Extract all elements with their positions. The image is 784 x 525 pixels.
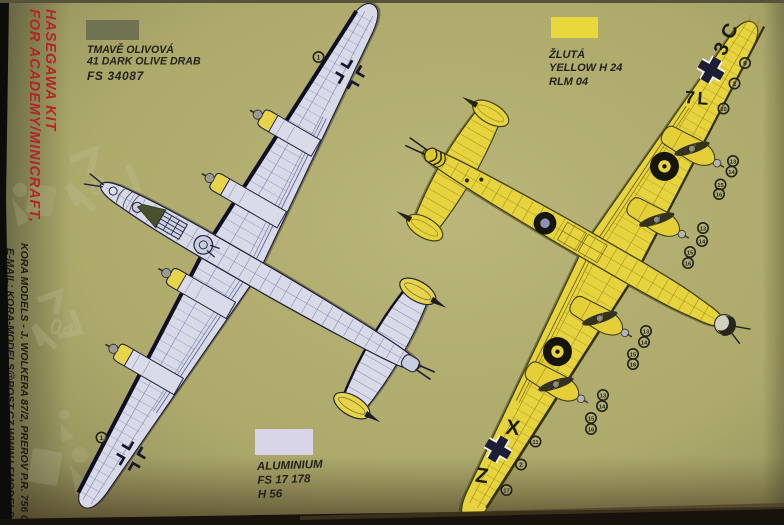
svg-text:41 DARK OLIVE DRAB: 41 DARK OLIVE DRAB [86,56,201,68]
svg-text:16: 16 [588,427,595,433]
svg-text:14: 14 [728,170,735,176]
svg-text:10: 10 [720,107,726,113]
svg-text:14: 14 [599,404,606,410]
svg-text:TMAVĚ OLIVOVÁ: TMAVĚ OLIVOVÁ [87,43,174,56]
svg-text:KORA MODELS - J. WOLKERA 87/2,: KORA MODELS - J. WOLKERA 87/2, PREROV P.… [18,243,30,525]
svg-text:YELLOW H 24: YELLOW H 24 [549,62,622,74]
svg-text:L: L [697,88,709,109]
svg-text:1: 1 [317,54,321,61]
svg-text:13: 13 [700,226,707,232]
svg-text:HASEGAWA KIT: HASEGAWA KIT [42,9,58,131]
svg-text:1: 1 [100,435,104,442]
svg-text:RLM 04: RLM 04 [549,76,588,88]
svg-text:13: 13 [643,329,650,335]
svg-text:ŽLUTÁ: ŽLUTÁ [548,48,585,61]
svg-text:14: 14 [641,340,648,346]
svg-text:14: 14 [699,239,706,245]
svg-text:2: 2 [733,81,737,88]
svg-text:15: 15 [717,183,724,189]
svg-text:9: 9 [743,60,747,67]
svg-text:FS 17 178: FS 17 178 [257,473,311,487]
svg-text:16: 16 [716,192,723,198]
svg-text:7: 7 [684,87,695,108]
svg-text:17: 17 [503,488,509,494]
svg-text:15: 15 [630,352,637,358]
svg-text:11: 11 [532,440,539,446]
svg-text:FOR ACADEMY/MINICRAFT,: FOR ACADEMY/MINICRAFT, [26,9,42,223]
svg-text:H 56: H 56 [258,488,283,501]
svg-text:13: 13 [600,393,607,399]
svg-text:16: 16 [685,261,692,267]
svg-text:16: 16 [630,362,637,368]
svg-text:FS 34087: FS 34087 [87,69,145,83]
svg-text:15: 15 [687,250,694,256]
svg-text:ALUMINIUM: ALUMINIUM [256,459,324,473]
svg-text:2: 2 [519,462,523,469]
svg-text:13: 13 [730,159,737,165]
svg-text:15: 15 [588,416,595,422]
